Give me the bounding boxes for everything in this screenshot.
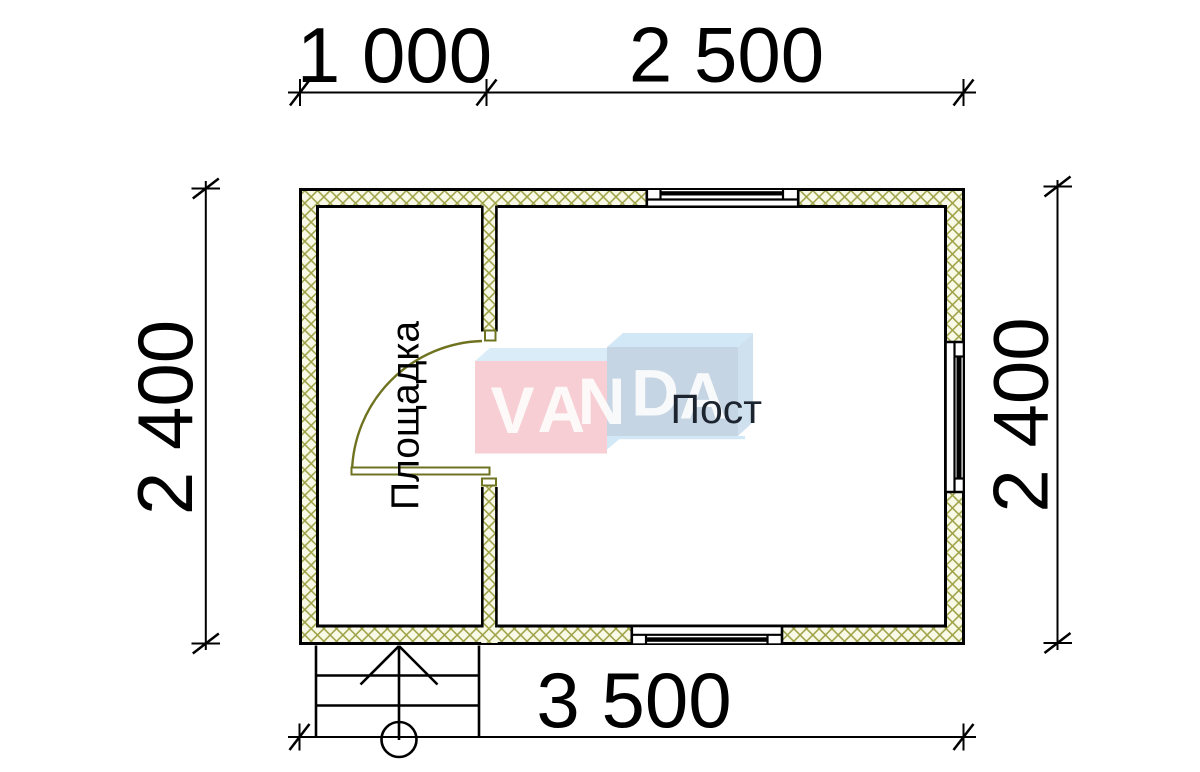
svg-text:Площадка: Площадка [385,321,428,510]
svg-text:2 500: 2 500 [629,11,824,99]
svg-text:2 400: 2 400 [977,317,1065,512]
svg-text:2 400: 2 400 [121,320,209,515]
svg-text:Пост: Пост [671,386,763,432]
svg-text:V: V [491,373,535,447]
svg-text:N: N [578,364,626,438]
svg-text:3 500: 3 500 [536,656,731,744]
svg-text:1 000: 1 000 [297,11,492,99]
